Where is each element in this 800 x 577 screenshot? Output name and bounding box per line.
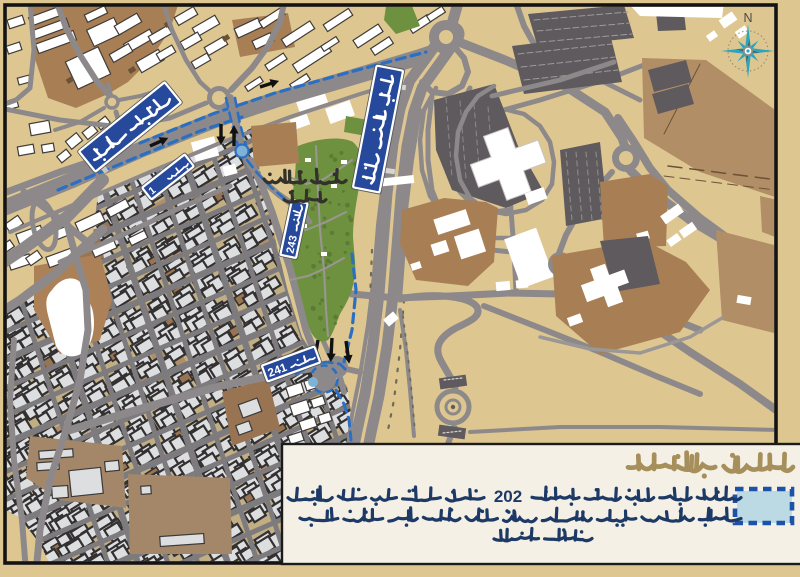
svg-text:N: N (743, 11, 752, 25)
svg-text:202: 202 (494, 487, 522, 506)
